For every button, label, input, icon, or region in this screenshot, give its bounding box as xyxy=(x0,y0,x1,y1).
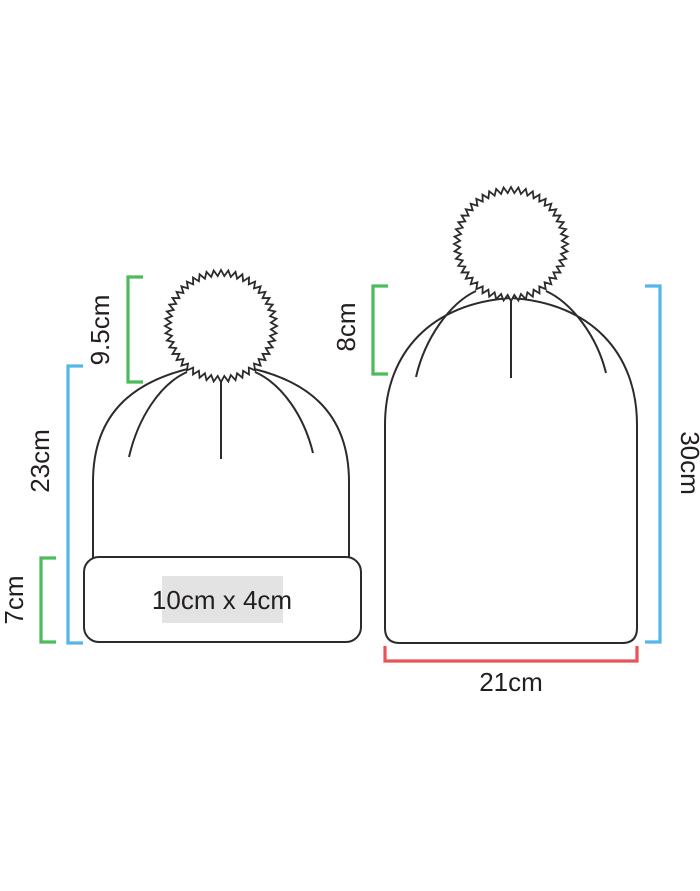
hat-width-label: 21cm xyxy=(479,667,543,697)
cuff-height-label: 7cm xyxy=(0,575,29,624)
right-beanie xyxy=(385,187,637,643)
hat-width-bracket xyxy=(385,646,637,661)
left-print-area-label: 10cm x 4cm xyxy=(152,585,292,615)
hat-height-label-right: 30cm xyxy=(675,431,700,495)
hat-height-label-left: 23cm xyxy=(25,429,55,493)
left-beanie: 10cm x 4cm xyxy=(84,270,361,642)
left-beanie-pompom-icon xyxy=(165,270,277,382)
pom-height-bracket-left xyxy=(128,277,143,382)
cuff-height-bracket xyxy=(41,558,56,642)
diagram-canvas: 10cm x 4cm 9.5cm 23cm 7cm 8cm 30cm xyxy=(0,0,700,891)
pom-height-label-left: 9.5cm xyxy=(85,295,115,366)
pom-height-bracket-right xyxy=(373,286,388,374)
hat-height-bracket-left xyxy=(68,366,83,643)
pom-height-label-right: 8cm xyxy=(331,302,361,351)
hat-height-bracket-right xyxy=(645,286,660,642)
beanie-size-diagram: 10cm x 4cm 9.5cm 23cm 7cm 8cm 30cm xyxy=(0,0,700,891)
right-beanie-pompom-icon xyxy=(454,187,568,301)
